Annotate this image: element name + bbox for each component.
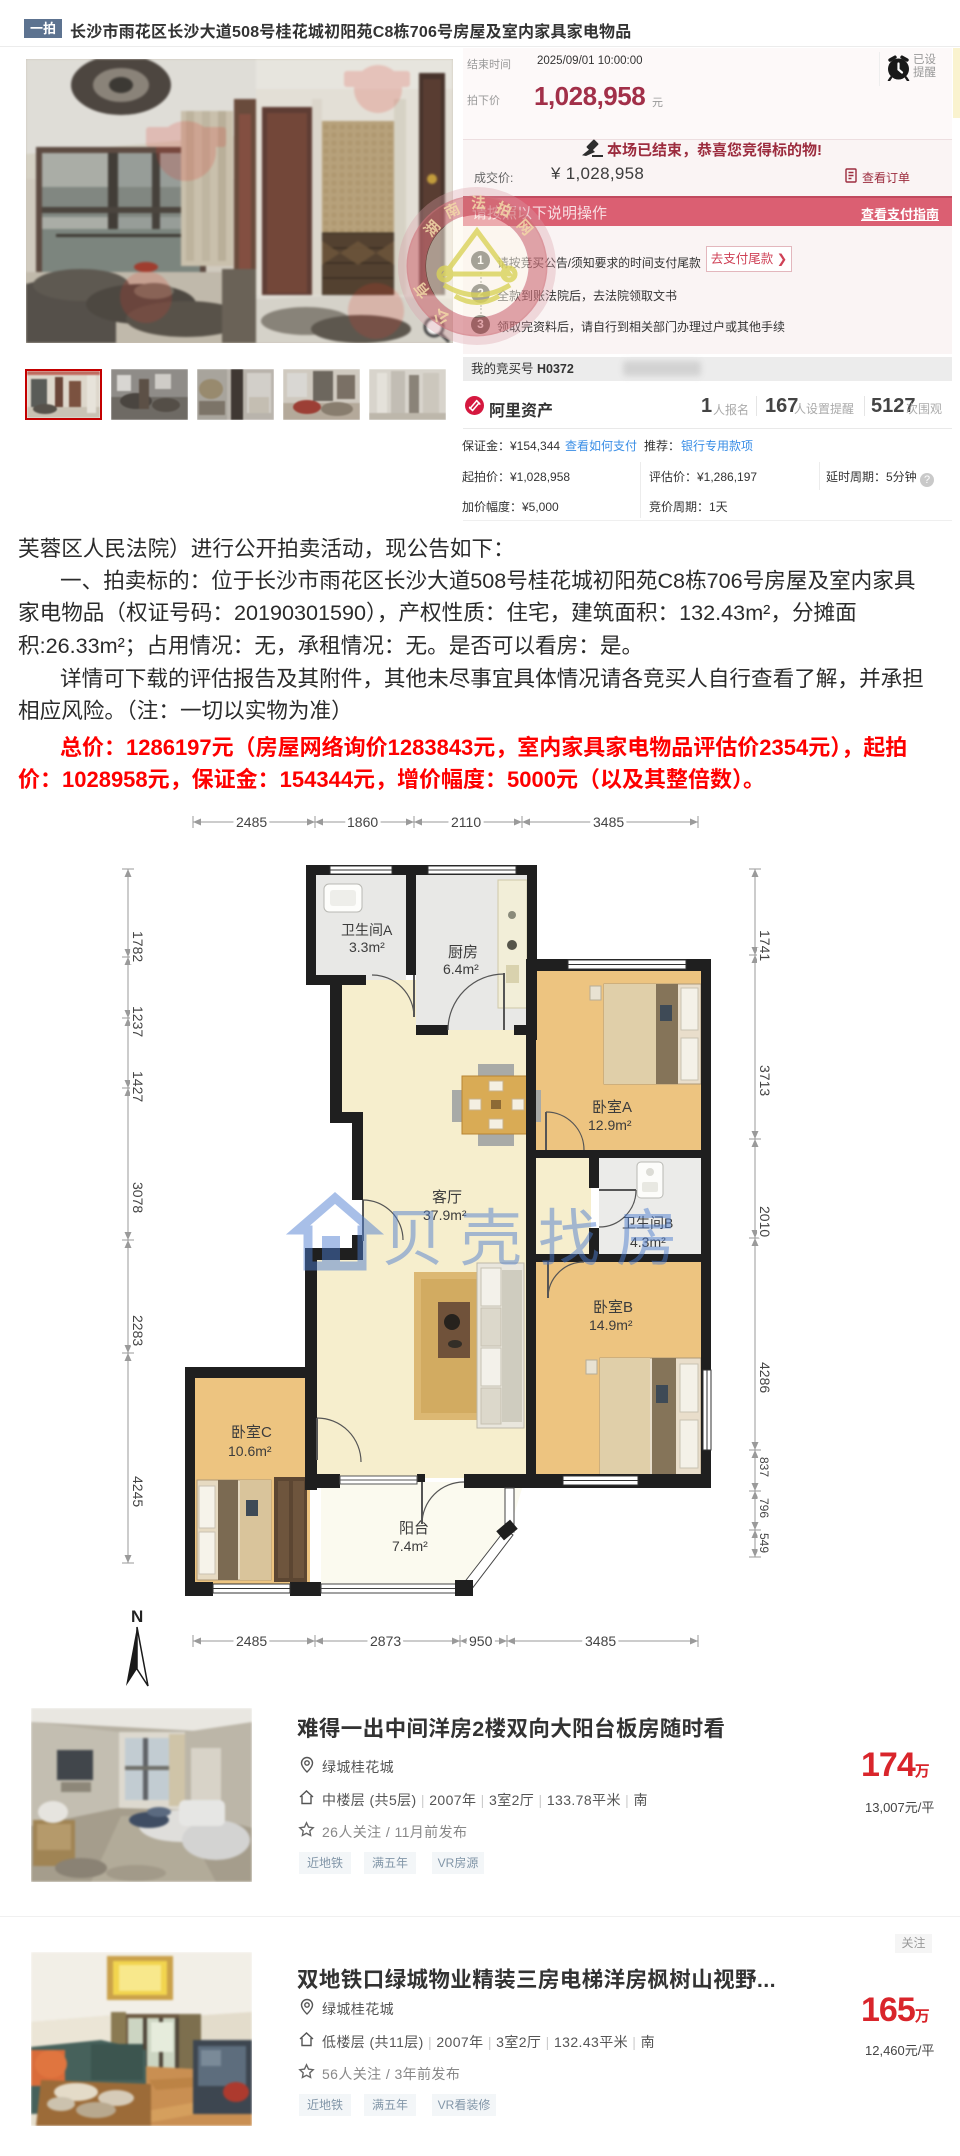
- svg-text:549: 549: [757, 1533, 771, 1553]
- svg-text:1427: 1427: [130, 1071, 146, 1102]
- svg-text:3078: 3078: [130, 1182, 146, 1213]
- svg-text:3485: 3485: [593, 814, 624, 830]
- svg-text:2485: 2485: [236, 814, 267, 830]
- svg-text:1782: 1782: [130, 931, 146, 962]
- svg-text:2283: 2283: [130, 1315, 146, 1346]
- svg-text:2873: 2873: [370, 1633, 401, 1649]
- svg-text:1741: 1741: [757, 930, 773, 961]
- svg-text:1237: 1237: [130, 1006, 146, 1037]
- svg-text:4245: 4245: [130, 1476, 146, 1507]
- svg-text:950: 950: [469, 1633, 493, 1649]
- svg-text:837: 837: [757, 1457, 771, 1477]
- svg-text:3485: 3485: [585, 1633, 616, 1649]
- svg-text:法: 法: [471, 194, 486, 212]
- svg-text:4286: 4286: [757, 1362, 773, 1393]
- svg-text:3713: 3713: [757, 1065, 773, 1096]
- svg-text:2485: 2485: [236, 1633, 267, 1649]
- svg-text:2010: 2010: [757, 1206, 773, 1237]
- svg-text:1860: 1860: [347, 814, 378, 830]
- svg-text:2110: 2110: [451, 814, 481, 830]
- svg-text:796: 796: [757, 1498, 771, 1518]
